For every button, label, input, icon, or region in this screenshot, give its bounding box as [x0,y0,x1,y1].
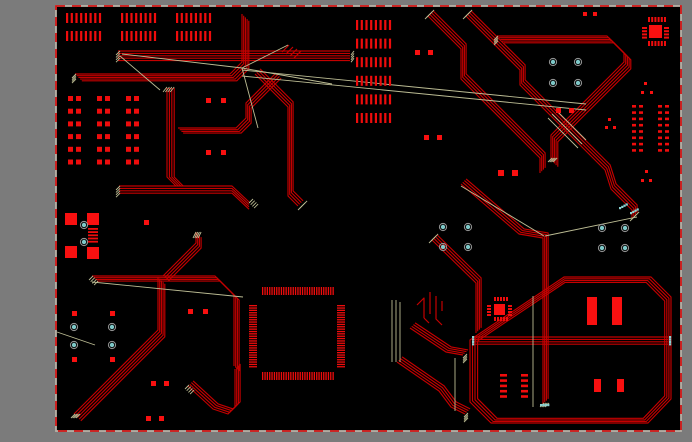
pad[interactable] [370,39,372,49]
pad[interactable] [304,372,305,380]
via[interactable] [551,81,555,85]
pad[interactable] [283,287,284,295]
pad[interactable] [185,31,187,41]
pad[interactable] [249,312,257,313]
pad[interactable] [311,287,312,295]
pad[interactable] [140,13,142,23]
via[interactable] [72,343,76,347]
pad[interactable] [88,238,98,240]
via[interactable] [441,245,445,249]
via[interactable] [551,60,555,64]
pad[interactable] [365,76,367,86]
pad[interactable] [639,124,643,127]
pad[interactable] [632,105,636,108]
pad[interactable] [658,111,662,114]
pad[interactable] [135,31,137,41]
pad[interactable] [512,170,518,176]
pad[interactable] [665,111,669,114]
pad[interactable] [508,305,512,307]
pad[interactable] [249,336,257,337]
pad[interactable] [267,372,268,380]
pad[interactable] [87,247,99,259]
pad[interactable] [361,57,363,67]
pad[interactable] [337,345,345,346]
pad[interactable] [639,137,643,140]
pad[interactable] [304,287,305,295]
pad[interactable] [665,143,669,146]
pad[interactable] [97,134,102,139]
pad[interactable] [337,366,345,367]
pad[interactable] [639,143,643,146]
pad[interactable] [356,113,358,123]
pad[interactable] [356,20,358,30]
pad[interactable] [105,134,110,139]
pad[interactable] [323,287,324,295]
pad[interactable] [307,372,308,380]
pad[interactable] [185,13,187,23]
pad[interactable] [126,96,131,101]
pad[interactable] [593,12,597,16]
pad[interactable] [105,96,110,101]
pad[interactable] [661,17,663,22]
pad[interactable] [333,287,334,295]
pad[interactable] [375,20,377,30]
pad[interactable] [121,31,123,41]
pad[interactable] [145,31,147,41]
pad[interactable] [221,98,226,103]
pad[interactable] [249,329,257,330]
pad[interactable] [651,17,653,22]
pad[interactable] [337,319,345,320]
pad[interactable] [121,13,123,23]
pad[interactable] [337,336,345,337]
pad[interactable] [384,39,386,49]
pad[interactable] [94,13,96,23]
pad[interactable] [337,350,345,351]
pcb-canvas[interactable] [0,0,692,442]
pad[interactable] [664,33,669,35]
pad[interactable] [664,41,666,46]
pad[interactable] [658,149,662,152]
pad[interactable] [307,287,308,295]
pad[interactable] [97,160,102,165]
via[interactable] [576,81,580,85]
pad[interactable] [290,372,291,380]
via[interactable] [82,240,86,244]
pad[interactable] [380,20,382,30]
pad[interactable] [154,31,156,41]
pad[interactable] [274,287,275,295]
pad[interactable] [316,287,317,295]
pad[interactable] [65,246,77,258]
pad[interactable] [494,317,496,321]
pad[interactable] [190,13,192,23]
pad[interactable] [337,324,345,325]
pad[interactable] [325,372,326,380]
via[interactable] [623,226,627,230]
pad[interactable] [68,134,73,139]
pad[interactable] [97,147,102,152]
pad[interactable] [500,297,502,301]
pad[interactable] [617,379,624,392]
pad[interactable] [632,130,636,133]
pad[interactable] [195,13,197,23]
pad[interactable] [314,287,315,295]
pad[interactable] [130,13,132,23]
pad[interactable] [76,109,81,114]
pad[interactable] [76,160,81,165]
pad[interactable] [365,20,367,30]
pad[interactable] [88,231,98,233]
via[interactable] [441,225,445,229]
pad[interactable] [249,361,257,362]
pad[interactable] [97,109,102,114]
pad[interactable] [85,13,87,23]
pad[interactable] [487,308,491,310]
pad[interactable] [337,312,345,313]
pad[interactable] [105,160,110,165]
pad[interactable] [365,94,367,104]
pad[interactable] [375,39,377,49]
pad[interactable] [85,31,87,41]
pad[interactable] [314,372,315,380]
pad[interactable] [361,76,363,86]
board-area[interactable] [56,6,681,431]
pad[interactable] [487,311,491,313]
pad[interactable] [309,287,310,295]
pad[interactable] [311,372,312,380]
pad[interactable] [134,121,139,126]
pad[interactable] [286,372,287,380]
pad[interactable] [149,31,151,41]
pad[interactable] [654,41,656,46]
via[interactable] [72,325,76,329]
pad[interactable] [66,31,68,41]
pad[interactable] [204,13,206,23]
pad[interactable] [249,307,257,308]
pad[interactable] [75,13,77,23]
pad[interactable] [587,297,597,325]
pad[interactable] [176,31,178,41]
pad[interactable] [330,372,331,380]
pad[interactable] [76,147,81,152]
pad[interactable] [370,113,372,123]
pad[interactable] [200,13,202,23]
pad[interactable] [295,287,296,295]
pad[interactable] [249,357,257,358]
pad[interactable] [521,395,528,398]
pad[interactable] [290,287,291,295]
pad[interactable] [642,37,647,39]
pad[interactable] [644,82,647,85]
pad[interactable] [375,113,377,123]
pad[interactable] [328,372,329,380]
pad[interactable] [126,109,131,114]
pad[interactable] [271,372,272,380]
pad[interactable] [176,13,178,23]
pad[interactable] [146,416,151,421]
pad[interactable] [126,160,131,165]
pad[interactable] [249,338,257,339]
pad[interactable] [330,287,331,295]
pad[interactable] [370,94,372,104]
pad[interactable] [389,39,391,49]
pad[interactable] [68,160,73,165]
pad[interactable] [71,31,73,41]
pad[interactable] [88,234,98,236]
pad[interactable] [503,317,505,321]
pad[interactable] [72,357,77,362]
pad[interactable] [521,379,528,382]
pad[interactable] [356,94,358,104]
pad[interactable] [249,326,257,327]
pad[interactable] [134,96,139,101]
pad[interactable] [140,31,142,41]
pad[interactable] [665,149,669,152]
pad[interactable] [337,361,345,362]
pad[interactable] [130,31,132,41]
pad[interactable] [658,143,662,146]
pad[interactable] [639,105,643,108]
pad[interactable] [293,372,294,380]
via[interactable] [623,246,627,250]
pad[interactable] [389,94,391,104]
pad[interactable] [249,305,257,306]
pad[interactable] [262,287,263,295]
pad[interactable] [437,135,442,140]
pad[interactable] [297,287,298,295]
pad[interactable] [370,57,372,67]
pad[interactable] [269,372,270,380]
pad[interactable] [632,124,636,127]
pad[interactable] [151,381,156,386]
pad[interactable] [665,124,669,127]
pad[interactable] [651,41,653,46]
pad[interactable] [110,357,115,362]
pad[interactable] [375,94,377,104]
pad[interactable] [154,13,156,23]
pad[interactable] [126,13,128,23]
pad[interactable] [664,37,669,39]
pad[interactable] [380,76,382,86]
pad[interactable] [206,150,211,155]
pad[interactable] [264,287,265,295]
pad[interactable] [126,134,131,139]
pad[interactable] [283,372,284,380]
pad[interactable] [664,17,666,22]
pad[interactable] [389,20,391,30]
pad[interactable] [642,30,647,32]
pad[interactable] [209,13,211,23]
pad[interactable] [506,297,508,301]
pad[interactable] [665,137,669,140]
pad[interactable] [249,324,257,325]
pad[interactable] [500,374,507,377]
pad[interactable] [134,134,139,139]
pad[interactable] [105,121,110,126]
pad[interactable] [384,20,386,30]
pad[interactable] [276,372,277,380]
pad[interactable] [648,41,650,46]
pad[interactable] [135,13,137,23]
pad[interactable] [497,317,499,321]
pad[interactable] [337,343,345,344]
pad[interactable] [648,17,650,22]
pad[interactable] [500,390,507,393]
pad[interactable] [65,213,77,225]
pad[interactable] [249,345,257,346]
pad[interactable] [126,121,131,126]
pad[interactable] [661,41,663,46]
pad[interactable] [337,352,345,353]
pad[interactable] [639,130,643,133]
pad[interactable] [249,331,257,332]
pad[interactable] [642,27,647,29]
pad[interactable] [337,326,345,327]
pad[interactable] [302,287,303,295]
pad[interactable] [206,98,211,103]
pad[interactable] [318,372,319,380]
pad[interactable] [94,31,96,41]
pad[interactable] [337,340,345,341]
pad[interactable] [209,31,211,41]
pad[interactable] [356,39,358,49]
pad[interactable] [608,118,611,121]
pad[interactable] [384,94,386,104]
pad[interactable] [658,105,662,108]
pad[interactable] [195,31,197,41]
pad[interactable] [76,134,81,139]
pad[interactable] [249,310,257,311]
pad[interactable] [639,118,643,121]
pad[interactable] [375,57,377,67]
pad[interactable] [389,113,391,123]
pad[interactable] [500,385,507,388]
pad[interactable] [249,352,257,353]
pad[interactable] [370,76,372,86]
pad[interactable] [249,340,257,341]
via[interactable] [600,226,604,230]
pad[interactable] [664,27,669,29]
pad[interactable] [632,111,636,114]
pad[interactable] [380,39,382,49]
pad[interactable] [658,41,660,46]
pad[interactable] [68,96,73,101]
pad[interactable] [500,395,507,398]
pad[interactable] [249,333,257,334]
pad[interactable] [658,137,662,140]
pad[interactable] [337,354,345,355]
via[interactable] [600,246,604,250]
pad[interactable] [318,287,319,295]
pad[interactable] [105,109,110,114]
pad[interactable] [288,372,289,380]
pad[interactable] [249,354,257,355]
pad[interactable] [181,31,183,41]
pad[interactable] [149,13,151,23]
pad[interactable] [521,390,528,393]
pad[interactable] [300,287,301,295]
pad[interactable] [68,109,73,114]
pad[interactable] [384,76,386,86]
pad[interactable] [415,50,420,55]
pad[interactable] [503,297,505,301]
pad[interactable] [361,113,363,123]
pad[interactable] [325,287,326,295]
pad[interactable] [321,287,322,295]
pad[interactable] [159,416,164,421]
pad[interactable] [302,372,303,380]
pad[interactable] [200,31,202,41]
pad[interactable] [274,372,275,380]
pad[interactable] [337,347,345,348]
via[interactable] [82,223,86,227]
pad[interactable] [76,121,81,126]
pad[interactable] [337,364,345,365]
pad[interactable] [632,118,636,121]
pad[interactable] [323,372,324,380]
pad[interactable] [264,372,265,380]
pad[interactable] [658,124,662,127]
pad[interactable] [506,317,508,321]
pad[interactable] [649,179,652,182]
pad[interactable] [110,311,115,316]
pad[interactable] [337,331,345,332]
pad[interactable] [249,350,257,351]
pad[interactable] [497,297,499,301]
pad[interactable] [384,57,386,67]
pad[interactable] [508,314,512,316]
pad[interactable] [337,314,345,315]
pad[interactable] [337,329,345,330]
pad[interactable] [508,311,512,313]
pad[interactable] [97,96,102,101]
pad[interactable] [88,241,98,243]
pad[interactable] [145,13,147,23]
pad[interactable] [203,309,208,314]
pad[interactable] [286,287,287,295]
pad[interactable] [300,372,301,380]
pad[interactable] [80,31,82,41]
pad[interactable] [126,31,128,41]
pad[interactable] [365,57,367,67]
pad[interactable] [288,287,289,295]
pad[interactable] [71,13,73,23]
pad[interactable] [134,160,139,165]
pad[interactable] [72,311,77,316]
pad[interactable] [249,314,257,315]
pad[interactable] [80,13,82,23]
pad[interactable] [267,287,268,295]
pad[interactable] [337,357,345,358]
pad[interactable] [316,372,317,380]
pad[interactable] [181,13,183,23]
pad[interactable] [328,287,329,295]
pad[interactable] [333,372,334,380]
pad[interactable] [144,220,149,225]
pad[interactable] [389,76,391,86]
via[interactable] [466,225,470,229]
pad[interactable] [521,385,528,388]
pad[interactable] [583,12,587,16]
pad[interactable] [605,126,608,129]
pad[interactable] [87,213,99,225]
pad[interactable] [658,118,662,121]
pad[interactable] [361,94,363,104]
pad[interactable] [389,57,391,67]
pad[interactable] [281,287,282,295]
pad[interactable] [380,94,382,104]
